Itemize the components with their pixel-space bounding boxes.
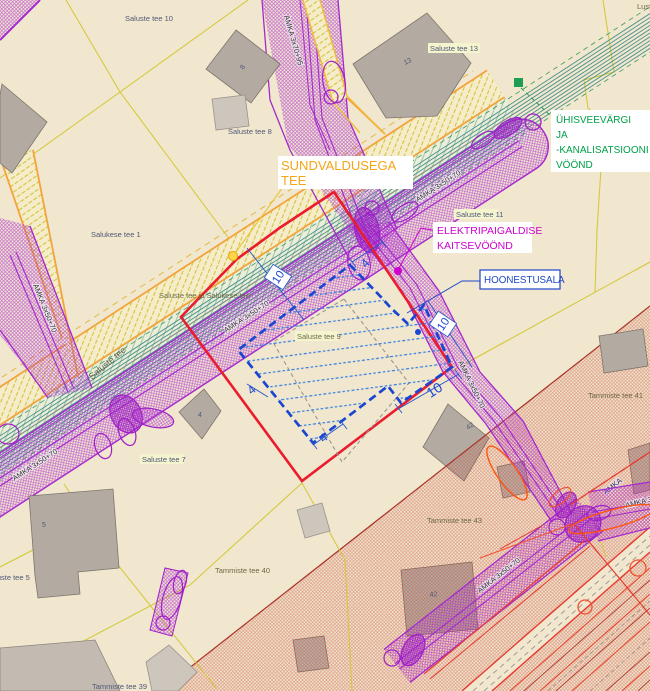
svg-text:TEE: TEE: [281, 173, 307, 188]
svg-text:42: 42: [429, 591, 438, 599]
svg-text:5: 5: [42, 522, 46, 529]
svg-text:Saluste tee 13: Saluste tee 13: [430, 44, 478, 53]
svg-text:KAITSEVÖÖND: KAITSEVÖÖND: [437, 240, 513, 252]
svg-text:Saluste tee 11: Saluste tee 11: [456, 210, 503, 219]
svg-text:Lusti: Lusti: [637, 2, 650, 11]
svg-text:Tammiste tee 41: Tammiste tee 41: [588, 391, 643, 400]
svg-text:-KANALISATSIOONI: -KANALISATSIOONI: [556, 145, 649, 156]
svg-text:Saluste tee 9: Saluste tee 9: [297, 332, 341, 341]
svg-text:ELEKTRIPAIGALDISE: ELEKTRIPAIGALDISE: [437, 225, 542, 237]
svg-text:ÜHISVEEVÄRGI: ÜHISVEEVÄRGI: [556, 114, 631, 126]
svg-text:JA: JA: [556, 130, 568, 141]
svg-text:Tammiste tee 40: Tammiste tee 40: [215, 566, 270, 575]
svg-text:Tammiste tee 39: Tammiste tee 39: [92, 682, 147, 691]
svg-text:Saluste tee 10: Saluste tee 10: [125, 14, 173, 23]
svg-text:Saluste tee 7: Saluste tee 7: [142, 455, 186, 464]
svg-text:Tammiste tee 43: Tammiste tee 43: [427, 516, 482, 525]
svg-text:Saluste tee 5: Saluste tee 5: [0, 573, 30, 582]
svg-text:Salukese tee 1: Salukese tee 1: [91, 230, 141, 239]
svg-text:Saluste tee 8: Saluste tee 8: [228, 127, 272, 136]
svg-text:HOONESTUSALA: HOONESTUSALA: [484, 275, 565, 286]
svg-text:4: 4: [198, 412, 202, 419]
svg-text:VÖÖND: VÖÖND: [556, 159, 593, 171]
svg-text:Saluste tee ja Salukese tee: Saluste tee ja Salukese tee: [159, 291, 250, 300]
svg-text:SUNDVALDUSEGA: SUNDVALDUSEGA: [281, 158, 397, 173]
